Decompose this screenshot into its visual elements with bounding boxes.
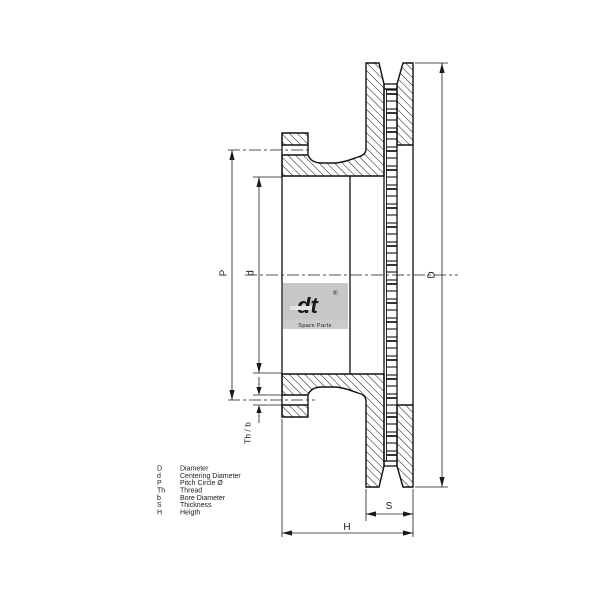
bottom-bolt-boss — [282, 405, 308, 417]
watermark-logo: dt ® Spare Parts — [283, 283, 348, 329]
legend-symbol: S — [157, 502, 162, 509]
legend-label: Heigth — [180, 510, 200, 517]
legend-label: Thread — [180, 488, 202, 495]
dimension-label-D: D — [427, 271, 438, 278]
legend-label: Pitch Circle Ø — [180, 480, 223, 487]
dimension-label-H: H — [343, 522, 350, 533]
dimension-label-S: S — [386, 501, 393, 512]
top-bolt-boss — [282, 133, 308, 145]
legend-symbol: D — [157, 466, 162, 473]
legend-symbol: H — [157, 510, 162, 517]
legend-label: Thickness — [180, 502, 212, 509]
brake-disc-technical-drawing: dt ® Spare Parts — [0, 0, 600, 600]
dimension-label-P: P — [219, 269, 230, 276]
legend-symbol: b — [157, 495, 161, 502]
watermark-registered-mark: ® — [333, 290, 338, 297]
dimension-label-thb: Th / b — [242, 422, 252, 444]
legend-label: Diameter — [180, 466, 209, 473]
legend-symbol: Th — [157, 488, 165, 495]
dimension-label-d: d — [246, 270, 257, 276]
legend-label: Centering Diameter — [180, 473, 241, 480]
legend-row: Th Thread — [157, 488, 202, 495]
top-right-plate — [397, 63, 413, 145]
legend-symbol: P — [157, 480, 162, 487]
bottom-right-plate — [397, 405, 413, 487]
legend-symbol: d — [157, 473, 161, 480]
watermark-caption: Spare Parts — [298, 323, 331, 329]
page: dt ® Spare Parts — [0, 0, 600, 600]
watermark-text: dt — [297, 293, 319, 318]
legend-label: Bore Diameter — [180, 495, 226, 502]
